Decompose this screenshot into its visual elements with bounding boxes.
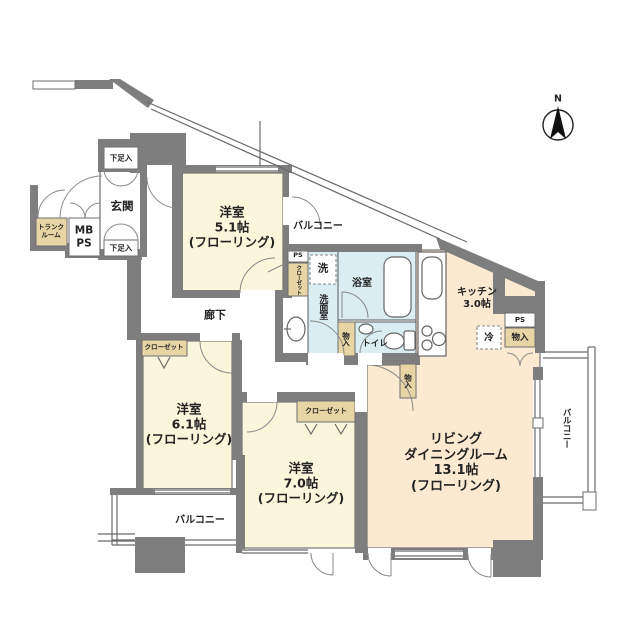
hallway-label: 廊下 xyxy=(204,308,226,321)
mbps-door-arc-1 xyxy=(70,203,85,218)
stove-burner-2 xyxy=(422,340,432,350)
kitchen-sink xyxy=(422,257,442,299)
living-name-1: リビング xyxy=(404,432,508,448)
monoire1-label: 物入 xyxy=(342,332,351,346)
ps2-label: PS xyxy=(515,316,525,324)
balcony-partition xyxy=(583,492,596,510)
balcony-right-label: バルコニー xyxy=(561,408,571,448)
mbps-door-arc-2 xyxy=(85,203,100,218)
trunk-door-arc xyxy=(38,190,65,217)
bedroom2-floor-type: (フローリング) xyxy=(146,432,232,447)
fridge-label: 冷 xyxy=(484,332,494,343)
block-bottom-right xyxy=(493,540,541,577)
bedroom1-size: 5.1帖 xyxy=(189,220,275,235)
trunk-line-2: ルーム xyxy=(38,232,64,240)
mb-ps-label: MB PS xyxy=(75,224,93,249)
living-label: リビング ダイニングルーム 13.1帖 (フローリング) xyxy=(404,432,508,494)
toilet-tank xyxy=(404,331,415,350)
bedroom3-label: 洋室 7.0帖 (フローリング) xyxy=(258,461,344,506)
bedroom2-label: 洋室 6.1帖 (フローリング) xyxy=(146,402,232,447)
block-bottom-left xyxy=(135,537,185,573)
ps-line: PS xyxy=(75,237,93,250)
shoebox-top-label: 下足入 xyxy=(110,154,133,163)
bedroom1-name: 洋室 xyxy=(189,205,275,220)
toilet-label: トイレ xyxy=(362,339,388,349)
bathroom-label: 浴室 xyxy=(352,278,372,290)
kitchen-label: キッチン 3.0帖 xyxy=(457,287,497,311)
monoire2-label: 物入 xyxy=(404,374,413,388)
north-label: N xyxy=(554,93,562,104)
entry-door-arc xyxy=(60,176,102,218)
washroom-label: 洗面室 xyxy=(317,294,328,320)
stove-burner-3 xyxy=(433,333,446,346)
bedroom3-size: 7.0帖 xyxy=(258,476,344,491)
shoebox-bottom-label: 下足入 xyxy=(110,244,133,253)
ps1-label: PS xyxy=(293,252,302,260)
living-name-2: ダイニングルーム xyxy=(404,447,508,463)
bedroom3-name: 洋室 xyxy=(258,461,344,476)
north-compass xyxy=(543,106,573,140)
bedroom1-label: 洋室 5.1帖 (フローリング) xyxy=(189,205,275,250)
toilet-sink xyxy=(359,324,373,334)
living-floor-type: (フローリング) xyxy=(404,479,508,495)
closet2-label: クローゼット xyxy=(145,344,184,352)
trunk-room-label: トランク ルーム xyxy=(38,224,64,240)
bedroom2-size: 6.1帖 xyxy=(146,417,232,432)
kitchen-size: 3.0帖 xyxy=(457,299,497,311)
bedroom1-floor-type: (フローリング) xyxy=(189,235,275,250)
closet3-label: クローゼット xyxy=(305,407,347,415)
washer-label: 洗 xyxy=(318,263,329,276)
outswing-arc-1 xyxy=(311,553,333,575)
shoebox-bottom-arc-1 xyxy=(104,224,121,241)
monoire3-label: 物入 xyxy=(511,333,528,343)
kitchen-name: キッチン xyxy=(457,287,497,299)
living-size: 13.1帖 xyxy=(404,463,508,479)
stove-burner-1 xyxy=(422,326,432,336)
entrance-label: 玄関 xyxy=(111,200,134,214)
bathtub xyxy=(384,257,411,317)
outer-wall-stub xyxy=(33,81,75,89)
mb-line: MB xyxy=(75,224,93,237)
bedroom2-name: 洋室 xyxy=(146,402,232,417)
floor-plan: N 洋室 5.1帖 (フローリング) 洋室 6.1帖 (フローリング) 洋室 7… xyxy=(0,0,640,640)
closet1-label: クローゼット xyxy=(295,265,302,295)
balcony-bottom-left-label: バルコニー xyxy=(175,515,225,527)
balcony-top-label: バルコニー xyxy=(293,221,343,233)
bedroom3-floor-type: (フローリング) xyxy=(258,491,344,506)
shoebox-bottom-arc-2 xyxy=(121,224,138,241)
